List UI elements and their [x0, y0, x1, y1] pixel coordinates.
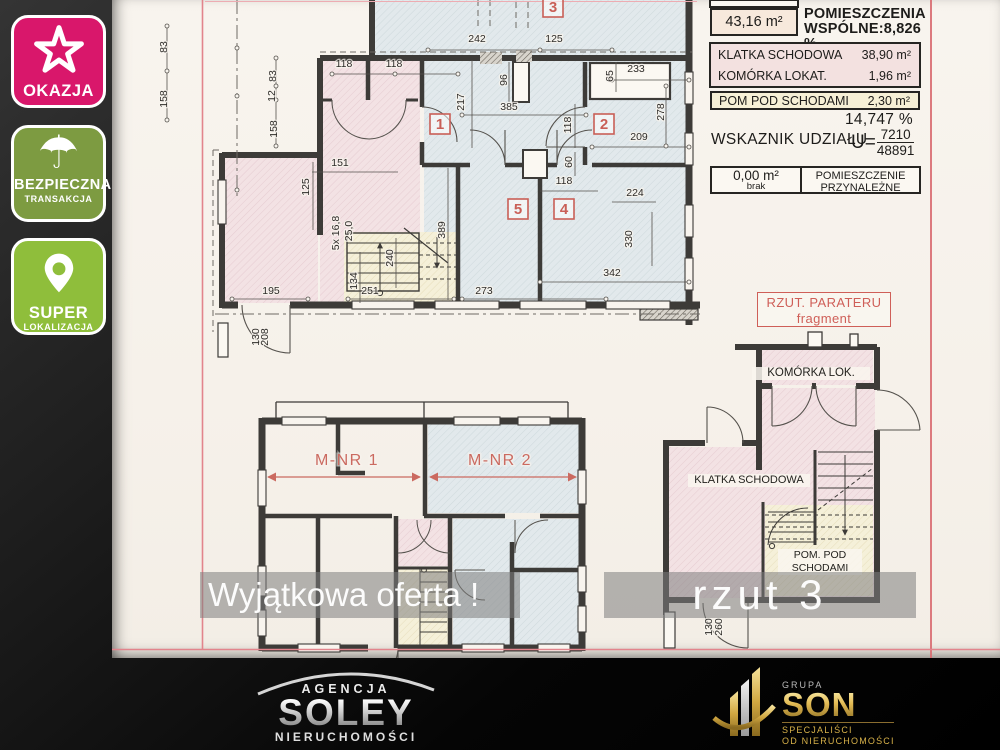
listing-image: 8315883121582421251181189621738565233278…: [0, 0, 1000, 750]
dimension-label: 134: [348, 272, 360, 290]
table-row: KLATKA SCHODOWA38,90 m²: [718, 48, 911, 62]
dimension-label: 251: [361, 285, 379, 297]
logo-swoosh-icon: [250, 666, 442, 696]
cropped-table-box: [710, 0, 798, 7]
common-area-value: 43,16 m²: [710, 8, 798, 36]
room-number: 2: [600, 116, 608, 133]
dimension-label: 60: [563, 156, 575, 168]
attached-room-box: 0,00 m² brak POMIESZCZENIE PRZYNALEŻNE: [710, 166, 921, 194]
dimension-label: 273: [475, 285, 493, 297]
badge-super-lokalizacja: SUPER LOKALIZACJA: [11, 238, 106, 335]
table-row: KOMÓRKA LOKAT.1,96 m²: [718, 69, 911, 83]
dimension-label: 385: [500, 101, 518, 113]
dimension-label: 125: [545, 33, 563, 45]
area-table: KLATKA SCHODOWA38,90 m² KOMÓRKA LOKAT.1,…: [709, 42, 921, 88]
dimension-label: 158: [158, 90, 170, 108]
dimension-label: 118: [386, 58, 403, 70]
dimension-label: 242: [468, 33, 486, 45]
dimension-label: 96: [498, 74, 510, 86]
watermark-rzut: rzut 3: [604, 572, 916, 618]
dimension-label: 330: [623, 230, 635, 248]
dimension-label: 195: [262, 285, 280, 297]
share-label: WSKAZNIK UDZIAŁU: [711, 131, 871, 149]
dimension-label: 25,0: [343, 221, 355, 242]
star-icon: [31, 23, 87, 77]
badge-okazja: OKAZJA: [11, 15, 106, 108]
unit-label: M-NR 2: [468, 452, 532, 469]
dimension-label: 118: [556, 175, 573, 187]
share-fraction: U= 7210 48891: [851, 127, 914, 158]
dimension-label: 233: [627, 63, 645, 75]
room-number: 1: [436, 116, 444, 133]
dimension-label: 12: [266, 90, 278, 102]
dimension-label: 83: [158, 41, 170, 53]
building-icon: [712, 662, 776, 742]
dimension-label: 260: [713, 618, 725, 636]
soley-agency-logo: AGENCJA SOLEY NIERUCHOMOŚCI: [250, 666, 442, 744]
dimension-label: 240: [384, 249, 396, 267]
room-number: 3: [549, 0, 557, 16]
room-number: 4: [560, 201, 569, 218]
location-pin-icon: [36, 247, 82, 299]
dimension-label: 342: [603, 267, 621, 279]
dimension-label: 125: [300, 178, 312, 196]
dimension-label: 151: [331, 157, 349, 169]
room-number: 5: [514, 201, 522, 218]
son-group-logo: GRUPA SON SPECJALIŚCI OD NIERUCHOMOŚCI: [712, 662, 895, 746]
room-label-komorka: KOMÓRKA LOK.: [752, 367, 870, 380]
dimension-label: 65: [604, 70, 616, 82]
dimension-label: 118: [336, 58, 353, 70]
dimension-label: 158: [268, 120, 280, 138]
watermark-offer: Wyjątkowa oferta !: [200, 572, 520, 618]
dimension-label: 5x 16,8: [330, 216, 342, 251]
table-row: POM POD SCHODAMI2,30 m²: [710, 91, 920, 110]
umbrella-icon: ☂: [14, 128, 103, 176]
dimension-label: 217: [455, 93, 467, 111]
dimension-label: 118: [562, 116, 574, 133]
room-label-klatka: KLATKA SCHODOWA: [688, 474, 810, 487]
dimension-label: 389: [436, 221, 448, 239]
dimension-label: 209: [630, 131, 648, 143]
dimension-label: 278: [655, 103, 667, 121]
dimension-label: 208: [259, 328, 271, 346]
fragment-title-box: RZUT. PARATERU fragment: [757, 292, 891, 327]
dimension-label: 224: [626, 187, 644, 199]
dimension-label: 83: [267, 70, 279, 82]
unit-label: M-NR 1: [315, 452, 379, 469]
badge-bezpieczna-transakcja: ☂ BEZPIECZNA TRANSAKCJA: [11, 125, 106, 222]
